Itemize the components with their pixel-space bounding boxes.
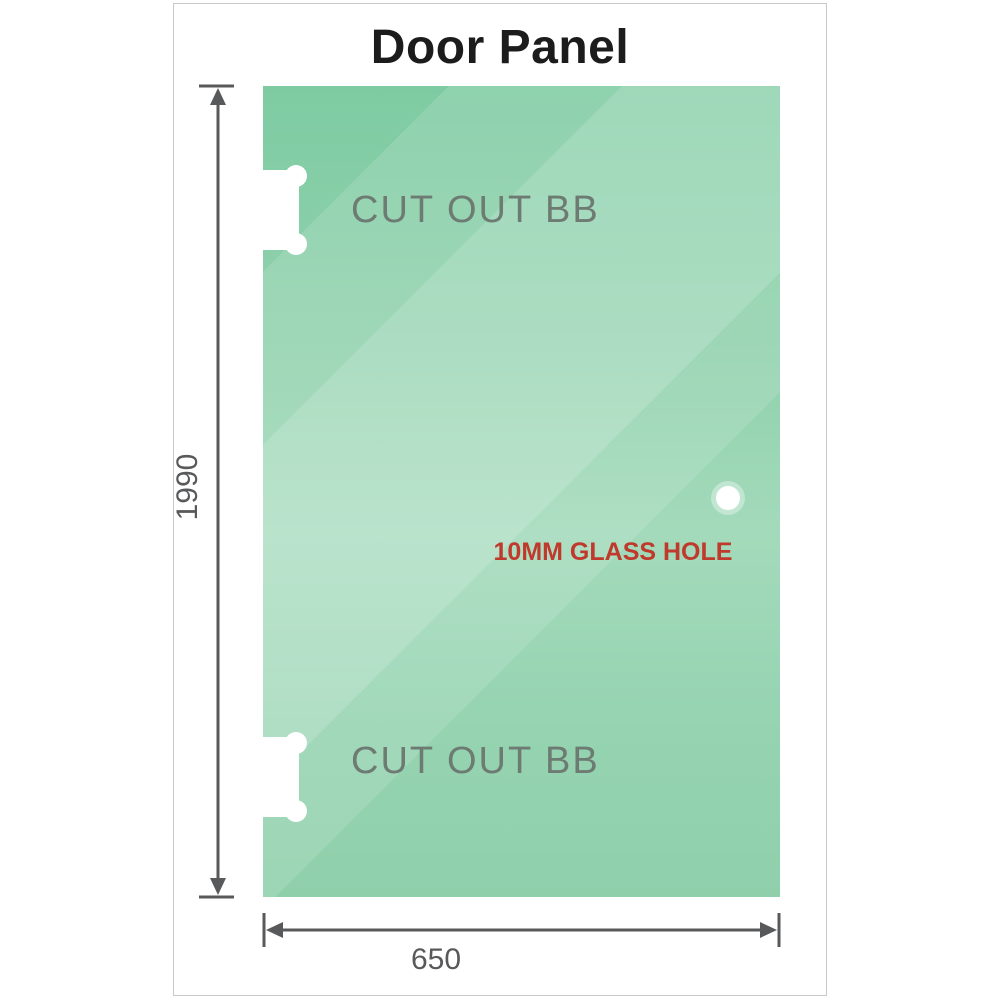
- width-dim-arrow-right: [760, 922, 777, 938]
- width-dimension-label: 650: [376, 942, 496, 978]
- height-dimension-line: [199, 86, 234, 897]
- width-dim-arrow-left: [266, 922, 283, 938]
- height-dim-arrow-down: [210, 878, 226, 895]
- height-dimension-label: 1990: [172, 427, 204, 547]
- width-dimension-line: [264, 913, 779, 947]
- drawing-frame: Door Panel CUT OUT BB CUT OUT BB 10MM GL…: [173, 3, 827, 996]
- dimension-lines: [174, 4, 828, 997]
- height-dim-arrow-up: [210, 88, 226, 105]
